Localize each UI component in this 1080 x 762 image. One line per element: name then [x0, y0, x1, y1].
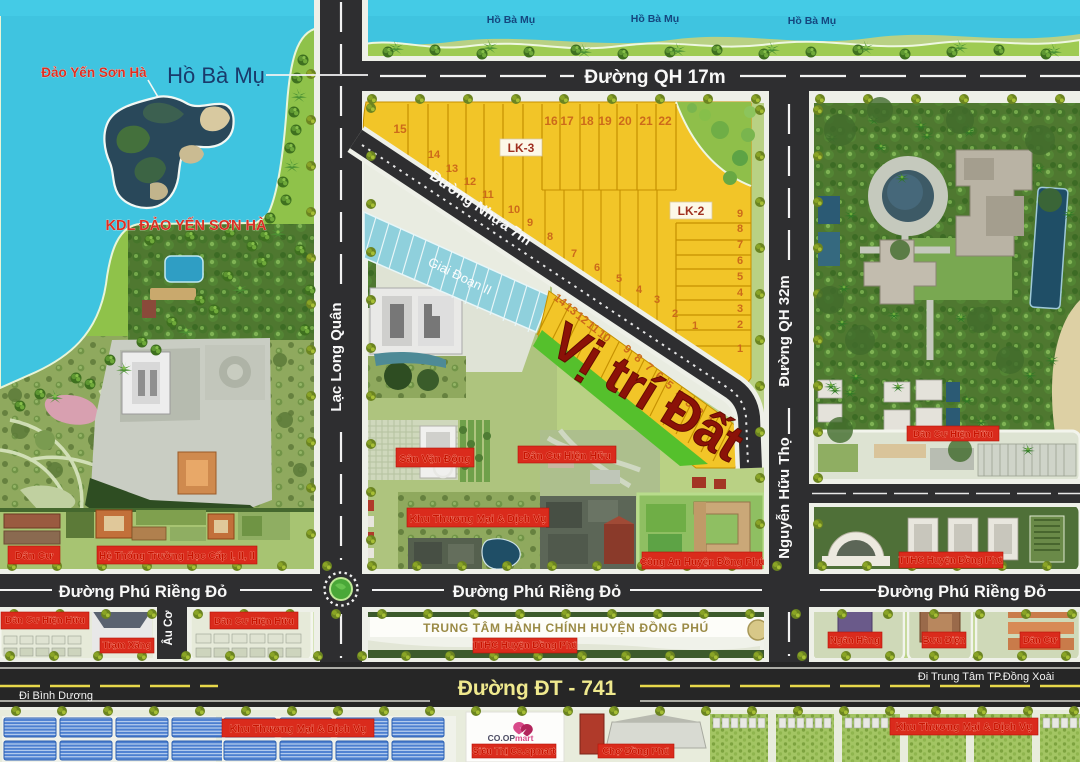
- svg-text:Dân Cư Hiện Hữu: Dân Cư Hiện Hữu: [214, 616, 294, 627]
- svg-text:13: 13: [446, 163, 458, 175]
- svg-text:Khu Thương Mại & Dịch Vụ: Khu Thương Mại & Dịch Vụ: [410, 513, 547, 525]
- svg-text:Chợ Đồng Phú: Chợ Đồng Phú: [603, 746, 670, 757]
- svg-text:Ngân Hàng: Ngân Hàng: [830, 635, 880, 646]
- svg-text:Hồ Bà Mụ: Hồ Bà Mụ: [788, 15, 836, 27]
- svg-text:19: 19: [598, 114, 612, 128]
- svg-text:22: 22: [658, 114, 672, 128]
- svg-text:Âu Cơ: Âu Cơ: [162, 610, 175, 646]
- svg-text:3: 3: [737, 303, 743, 315]
- svg-text:LK-2: LK-2: [678, 204, 705, 218]
- svg-text:6: 6: [594, 262, 600, 274]
- svg-text:10: 10: [508, 204, 520, 216]
- svg-text:2: 2: [737, 319, 743, 331]
- svg-text:Trạm Xăng: Trạm Xăng: [103, 640, 152, 651]
- svg-text:mart: mart: [515, 733, 534, 743]
- svg-text:18: 18: [580, 114, 594, 128]
- svg-text:TTHC Huyện Đồng Phú: TTHC Huyện Đồng Phú: [473, 640, 578, 651]
- svg-text:5: 5: [737, 271, 743, 283]
- svg-text:Đường Phú Riềng Đỏ: Đường Phú Riềng Đỏ: [59, 583, 228, 601]
- svg-text:Khu Thương Mại & Dịch Vụ: Khu Thương Mại & Dịch Vụ: [896, 721, 1033, 733]
- svg-text:Siêu Thị Co.opmart: Siêu Thị Co.opmart: [473, 746, 556, 756]
- svg-text:Hồ Bà Mụ: Hồ Bà Mụ: [167, 63, 265, 88]
- svg-text:TRUNG TÂM HÀNH CHÍNH HUYỆN ĐỒN: TRUNG TÂM HÀNH CHÍNH HUYỆN ĐỒNG PHÚ: [423, 620, 709, 635]
- svg-text:8: 8: [737, 223, 743, 235]
- svg-text:7: 7: [571, 248, 577, 260]
- svg-text:CO.OP: CO.OP: [488, 733, 516, 743]
- svg-text:Sân Vận Động: Sân Vận Động: [399, 453, 470, 465]
- svg-text:Dân Cư Hiện Hữu: Dân Cư Hiện Hữu: [523, 450, 611, 462]
- svg-text:20: 20: [618, 114, 632, 128]
- svg-text:Đường QH 32m: Đường QH 32m: [776, 275, 793, 387]
- svg-text:Dân Cư: Dân Cư: [1023, 635, 1057, 646]
- svg-text:14: 14: [428, 149, 441, 161]
- svg-text:8: 8: [547, 231, 553, 243]
- svg-text:Hệ Thống Trường Học Cấp I, II,: Hệ Thống Trường Học Cấp I, II, II: [99, 550, 255, 562]
- svg-text:6: 6: [737, 255, 743, 267]
- svg-text:Đường ĐT - 741: Đường ĐT - 741: [458, 677, 617, 700]
- svg-text:4: 4: [737, 287, 744, 299]
- svg-text:KDL ĐẢO YẾN SƠN HÀ: KDL ĐẢO YẾN SƠN HÀ: [106, 217, 267, 234]
- svg-text:Dân Cư Hiện Hữu: Dân Cư Hiện Hữu: [5, 615, 85, 626]
- svg-text:21: 21: [639, 114, 653, 128]
- svg-text:9: 9: [527, 217, 533, 229]
- svg-text:Lạc Long Quân: Lạc Long Quân: [328, 302, 345, 411]
- svg-text:LK-3: LK-3: [508, 141, 535, 155]
- svg-text:Đi Trung Tâm TP.Đồng Xoài: Đi Trung Tâm TP.Đồng Xoài: [918, 671, 1054, 683]
- svg-text:Đường QH 17m: Đường QH 17m: [584, 67, 725, 88]
- svg-text:4: 4: [636, 284, 643, 296]
- svg-text:Khu Thương Mại & Dịch Vụ: Khu Thương Mại & Dịch Vụ: [230, 723, 367, 735]
- svg-text:Đường Phú Riềng Đỏ: Đường Phú Riềng Đỏ: [878, 583, 1047, 601]
- svg-text:Nguyễn Hữu Thọ: Nguyễn Hữu Thọ: [776, 437, 793, 559]
- svg-text:Dân Cư: Dân Cư: [15, 550, 53, 562]
- svg-text:5: 5: [616, 273, 622, 285]
- svg-text:17: 17: [560, 114, 574, 128]
- svg-text:9: 9: [737, 208, 743, 220]
- svg-text:12: 12: [464, 176, 476, 188]
- svg-text:Dân Cư Hiện Hữu: Dân Cư Hiện Hữu: [913, 429, 993, 440]
- svg-text:1: 1: [737, 343, 743, 355]
- svg-text:Đường Phú Riềng Đỏ: Đường Phú Riềng Đỏ: [453, 583, 622, 601]
- svg-text:TTHC Huyện Đồng Phú: TTHC Huyện Đồng Phú: [899, 555, 1004, 566]
- svg-text:2: 2: [672, 308, 678, 320]
- svg-text:1: 1: [692, 320, 698, 332]
- svg-text:15: 15: [393, 122, 407, 136]
- svg-text:Bưu Điện: Bưu Điện: [923, 635, 966, 646]
- svg-text:7: 7: [737, 239, 743, 251]
- svg-text:Hồ Bà Mụ: Hồ Bà Mụ: [487, 14, 535, 26]
- svg-text:16: 16: [544, 114, 558, 128]
- svg-text:Đi Bình Dương: Đi Bình Dương: [19, 690, 93, 702]
- svg-text:Công An Huyện Đồng Phú: Công An Huyện Đồng Phú: [640, 556, 765, 568]
- svg-text:Đảo Yến Sơn Hà: Đảo Yến Sơn Hà: [41, 65, 147, 80]
- svg-text:Hồ Bà Mụ: Hồ Bà Mụ: [631, 13, 679, 25]
- svg-text:3: 3: [654, 294, 660, 306]
